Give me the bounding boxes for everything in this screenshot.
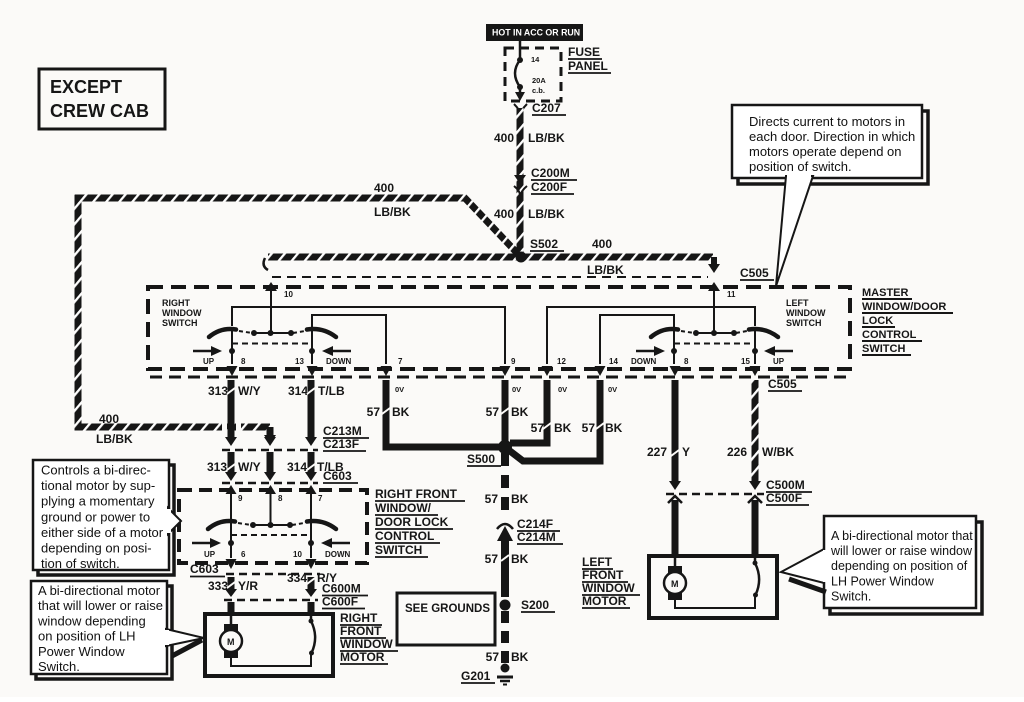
- svg-text:CONTROL: CONTROL: [375, 529, 434, 543]
- svg-text:FRONT: FRONT: [582, 568, 624, 582]
- svg-text:MOTOR: MOTOR: [582, 594, 627, 608]
- svg-text:400: 400: [494, 207, 514, 221]
- svg-text:BK: BK: [392, 405, 410, 419]
- svg-text:on position of LH: on position of LH: [38, 629, 136, 644]
- svg-text:WINDOW: WINDOW: [340, 637, 393, 651]
- svg-text:57: 57: [582, 421, 596, 435]
- svg-text:motors operate depend on: motors operate depend on: [749, 144, 902, 159]
- svg-text:Switch.: Switch.: [38, 659, 80, 674]
- svg-text:400: 400: [494, 131, 514, 145]
- svg-text:WINDOW: WINDOW: [786, 308, 826, 318]
- svg-text:10: 10: [284, 290, 293, 299]
- svg-text:314: 314: [287, 460, 307, 474]
- svg-text:SWITCH: SWITCH: [862, 343, 905, 355]
- svg-text:plying a momentary: plying a momentary: [41, 494, 155, 509]
- svg-text:C600M: C600M: [322, 582, 361, 596]
- svg-text:W/Y: W/Y: [238, 460, 261, 474]
- svg-text:400: 400: [99, 412, 119, 426]
- svg-text:SWITCH: SWITCH: [375, 543, 422, 557]
- svg-text:C213M: C213M: [323, 424, 362, 438]
- svg-text:LEFT: LEFT: [582, 555, 613, 569]
- svg-text:LB/BK: LB/BK: [96, 432, 133, 446]
- svg-text:313: 313: [207, 460, 227, 474]
- svg-text:C500M: C500M: [766, 478, 805, 492]
- svg-text:LB/BK: LB/BK: [374, 205, 411, 219]
- svg-text:DOWN: DOWN: [631, 357, 657, 366]
- svg-text:depending on posi-: depending on posi-: [41, 541, 152, 556]
- svg-text:PANEL: PANEL: [568, 59, 608, 73]
- svg-text:G201: G201: [461, 669, 491, 683]
- svg-text:8: 8: [241, 357, 246, 366]
- svg-text:S500: S500: [467, 452, 495, 466]
- svg-text:Y/R: Y/R: [238, 579, 258, 593]
- svg-text:EXCEPT: EXCEPT: [50, 77, 122, 97]
- svg-text:BK: BK: [605, 421, 623, 435]
- svg-text:400: 400: [592, 237, 612, 251]
- svg-text:C214M: C214M: [517, 530, 556, 544]
- svg-text:LEFT: LEFT: [786, 298, 809, 308]
- svg-text:C200F: C200F: [531, 180, 567, 194]
- svg-text:11: 11: [727, 290, 736, 299]
- svg-text:0V: 0V: [395, 385, 404, 394]
- svg-text:FUSE: FUSE: [568, 45, 600, 59]
- svg-text:S502: S502: [530, 237, 558, 251]
- svg-text:RIGHT: RIGHT: [162, 298, 191, 308]
- svg-text:9: 9: [238, 494, 243, 503]
- svg-text:DOWN: DOWN: [325, 550, 351, 559]
- svg-text:c.b.: c.b.: [532, 86, 545, 95]
- svg-text:57: 57: [485, 552, 499, 566]
- svg-text:C505: C505: [768, 377, 797, 391]
- svg-text:that will lower or raise: that will lower or raise: [38, 598, 163, 613]
- svg-text:CONTROL: CONTROL: [862, 329, 917, 341]
- svg-text:Power Window: Power Window: [38, 644, 125, 659]
- svg-text:C600F: C600F: [322, 595, 358, 609]
- svg-text:DOOR LOCK: DOOR LOCK: [375, 515, 449, 529]
- svg-text:9: 9: [511, 357, 516, 366]
- svg-text:LH Power Window: LH Power Window: [831, 574, 935, 588]
- svg-text:LB/BK: LB/BK: [587, 263, 624, 277]
- svg-text:S200: S200: [521, 598, 549, 612]
- svg-text:C500F: C500F: [766, 491, 802, 505]
- svg-text:57: 57: [485, 492, 499, 506]
- svg-text:window depending: window depending: [37, 613, 146, 628]
- svg-text:FRONT: FRONT: [340, 624, 382, 638]
- svg-text:W/BK: W/BK: [762, 445, 794, 459]
- svg-text:either side of a motor: either side of a motor: [41, 525, 164, 540]
- svg-text:WINDOW: WINDOW: [582, 581, 635, 595]
- svg-text:RIGHT FRONT: RIGHT FRONT: [375, 487, 458, 501]
- svg-text:BK: BK: [554, 421, 572, 435]
- svg-text:57: 57: [531, 421, 545, 435]
- svg-text:SWITCH: SWITCH: [162, 318, 198, 328]
- svg-text:8: 8: [278, 494, 283, 503]
- svg-text:BK: BK: [511, 552, 529, 566]
- svg-text:UP: UP: [203, 357, 215, 366]
- svg-text:BK: BK: [511, 405, 529, 419]
- svg-text:8: 8: [684, 357, 689, 366]
- svg-text:226: 226: [727, 445, 747, 459]
- svg-text:C214F: C214F: [517, 517, 553, 531]
- svg-text:7: 7: [318, 494, 323, 503]
- svg-text:15: 15: [741, 357, 750, 366]
- svg-text:DOWN: DOWN: [326, 357, 352, 366]
- svg-text:WINDOW/DOOR: WINDOW/DOOR: [862, 301, 946, 313]
- svg-text:SWITCH: SWITCH: [786, 318, 822, 328]
- svg-text:C603: C603: [323, 469, 352, 483]
- svg-text:0V: 0V: [558, 385, 567, 394]
- svg-text:tional motor by sup-: tional motor by sup-: [41, 478, 155, 493]
- svg-text:WINDOW/: WINDOW/: [375, 501, 432, 515]
- svg-text:LB/BK: LB/BK: [528, 207, 565, 221]
- svg-text:7: 7: [398, 357, 403, 366]
- svg-text:each door. Direction in which: each door. Direction in which: [749, 129, 915, 144]
- svg-text:depending on position of: depending on position of: [831, 559, 968, 573]
- svg-text:WINDOW: WINDOW: [162, 308, 202, 318]
- svg-text:10: 10: [293, 550, 302, 559]
- svg-text:T/LB: T/LB: [318, 384, 345, 398]
- svg-text:Y: Y: [682, 445, 690, 459]
- svg-text:M: M: [671, 579, 679, 589]
- svg-text:C505: C505: [740, 266, 769, 280]
- svg-text:57: 57: [367, 405, 381, 419]
- svg-text:HOT IN ACC OR RUN: HOT IN ACC OR RUN: [492, 28, 580, 38]
- svg-text:C603: C603: [190, 562, 219, 576]
- svg-text:position of switch.: position of switch.: [749, 159, 852, 174]
- svg-text:0V: 0V: [608, 385, 617, 394]
- svg-text:UP: UP: [773, 357, 785, 366]
- svg-text:A bi-directional motor that: A bi-directional motor that: [831, 529, 973, 543]
- svg-text:57: 57: [486, 650, 500, 664]
- svg-text:BK: BK: [511, 492, 529, 506]
- svg-text:W/Y: W/Y: [238, 384, 261, 398]
- svg-text:RIGHT: RIGHT: [340, 611, 378, 625]
- svg-text:14: 14: [531, 55, 540, 64]
- svg-text:M: M: [227, 637, 235, 647]
- svg-text:LB/BK: LB/BK: [528, 131, 565, 145]
- svg-text:BK: BK: [511, 650, 529, 664]
- svg-text:MASTER: MASTER: [862, 287, 909, 299]
- svg-text:20A: 20A: [532, 76, 546, 85]
- svg-text:6: 6: [241, 550, 246, 559]
- svg-text:ground or power to: ground or power to: [41, 509, 150, 524]
- svg-text:57: 57: [486, 405, 500, 419]
- svg-text:will lower or raise window: will lower or raise window: [830, 544, 973, 558]
- svg-text:CREW CAB: CREW CAB: [50, 101, 149, 121]
- svg-text:C207: C207: [532, 101, 561, 115]
- svg-text:334: 334: [287, 571, 307, 585]
- svg-text:C200M: C200M: [531, 166, 570, 180]
- svg-text:tion of switch.: tion of switch.: [41, 556, 120, 571]
- svg-text:C213F: C213F: [323, 437, 359, 451]
- svg-text:333: 333: [208, 579, 228, 593]
- svg-text:400: 400: [374, 181, 394, 195]
- svg-text:313: 313: [208, 384, 228, 398]
- svg-text:Switch.: Switch.: [831, 589, 871, 603]
- svg-text:A bi-directional motor: A bi-directional motor: [38, 583, 161, 598]
- svg-text:12: 12: [557, 357, 566, 366]
- svg-text:MOTOR: MOTOR: [340, 650, 385, 664]
- svg-text:LOCK: LOCK: [862, 315, 893, 327]
- svg-text:Directs current to motors in: Directs current to motors in: [749, 114, 905, 129]
- svg-text:314: 314: [288, 384, 308, 398]
- svg-text:UP: UP: [204, 550, 216, 559]
- svg-text:227: 227: [647, 445, 667, 459]
- svg-text:Controls a bi-direc-: Controls a bi-direc-: [41, 463, 151, 478]
- svg-text:SEE GROUNDS: SEE GROUNDS: [405, 603, 490, 615]
- svg-text:0V: 0V: [512, 385, 521, 394]
- svg-text:14: 14: [609, 357, 618, 366]
- svg-text:13: 13: [295, 357, 304, 366]
